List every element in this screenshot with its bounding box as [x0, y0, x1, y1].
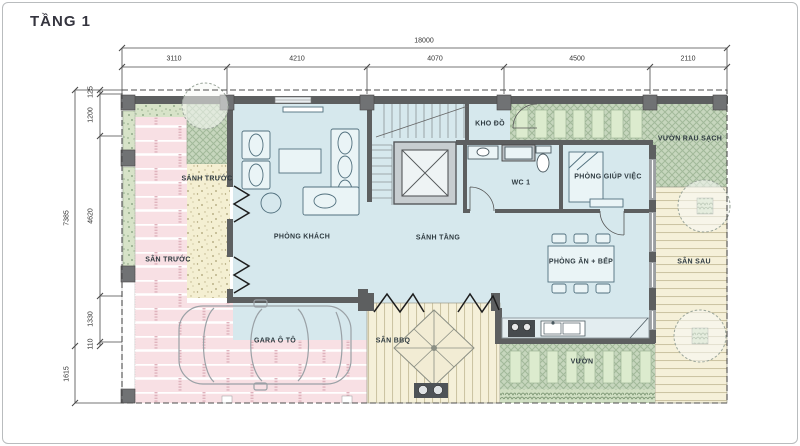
room-label-garden: VƯỜN	[571, 359, 594, 366]
room-label-front-hall: SẢNH TRƯỚC	[182, 176, 233, 183]
room-label-storage: KHO ĐỒ	[475, 121, 505, 128]
dim-left-seg-2: 1200	[88, 107, 95, 123]
left-hedge-lower	[123, 167, 135, 266]
dim-left-seg-3: 4620	[88, 208, 95, 224]
bottom-shrub-row	[500, 389, 655, 403]
dim-top-seg-5: 2110	[680, 56, 695, 63]
floorplan-canvas: TẦNG 1	[0, 0, 800, 446]
stair-divider-wall	[367, 104, 372, 202]
room-label-front-yard: SÂN TRƯỚC	[145, 257, 191, 264]
dim-left-total-lower: 1615	[64, 366, 71, 382]
front-walk-path	[187, 164, 230, 298]
dim-left-total-upper: 7385	[64, 210, 71, 226]
room-label-maid-room: PHÒNG GIÚP VIỆC	[574, 174, 641, 181]
dim-left-seg-4: 1330	[88, 311, 95, 327]
left-hedge-upper	[123, 111, 135, 150]
room-label-vegetable-garden: VƯỜN RAU SẠCH	[658, 136, 722, 143]
dim-top-total: 18000	[414, 38, 433, 45]
room-label-garage: GARA Ô TÔ	[254, 338, 296, 345]
right-wall-windows	[649, 145, 656, 343]
vegetable-garden-corner	[653, 104, 727, 187]
living-room-window	[275, 97, 311, 103]
room-label-back-yard: SÂN SAU	[677, 259, 711, 266]
dim-top-seg-3: 4070	[427, 56, 443, 63]
dim-top-seg-4: 4500	[569, 56, 585, 63]
kitchen-counter	[502, 318, 649, 338]
room-label-bbq-yard: SÂN BBQ	[376, 338, 410, 345]
dim-left-seg-5: 110	[88, 338, 95, 349]
room-label-main-hall: SẢNH TẦNG	[416, 235, 460, 242]
room-label-dining-kitchen: PHÒNG ĂN + BẾP	[549, 259, 613, 266]
dim-top-seg-2: 4210	[289, 56, 305, 63]
garage-top-wall	[233, 297, 367, 303]
elevator	[394, 142, 456, 204]
vegetable-garden-beds	[516, 110, 642, 138]
floorplan-drawing	[0, 0, 800, 446]
kitchen-bottom-wall	[495, 338, 655, 344]
room-label-wc1: WC 1	[512, 180, 531, 187]
front-hedge-strip	[135, 104, 187, 117]
dim-left-seg-1: 125	[88, 86, 95, 98]
wc-maid-divider	[559, 145, 563, 209]
bbq-grill	[414, 383, 448, 398]
room-label-living-room: PHÒNG KHÁCH	[274, 234, 330, 241]
dim-top-seg-1: 3110	[166, 56, 181, 63]
